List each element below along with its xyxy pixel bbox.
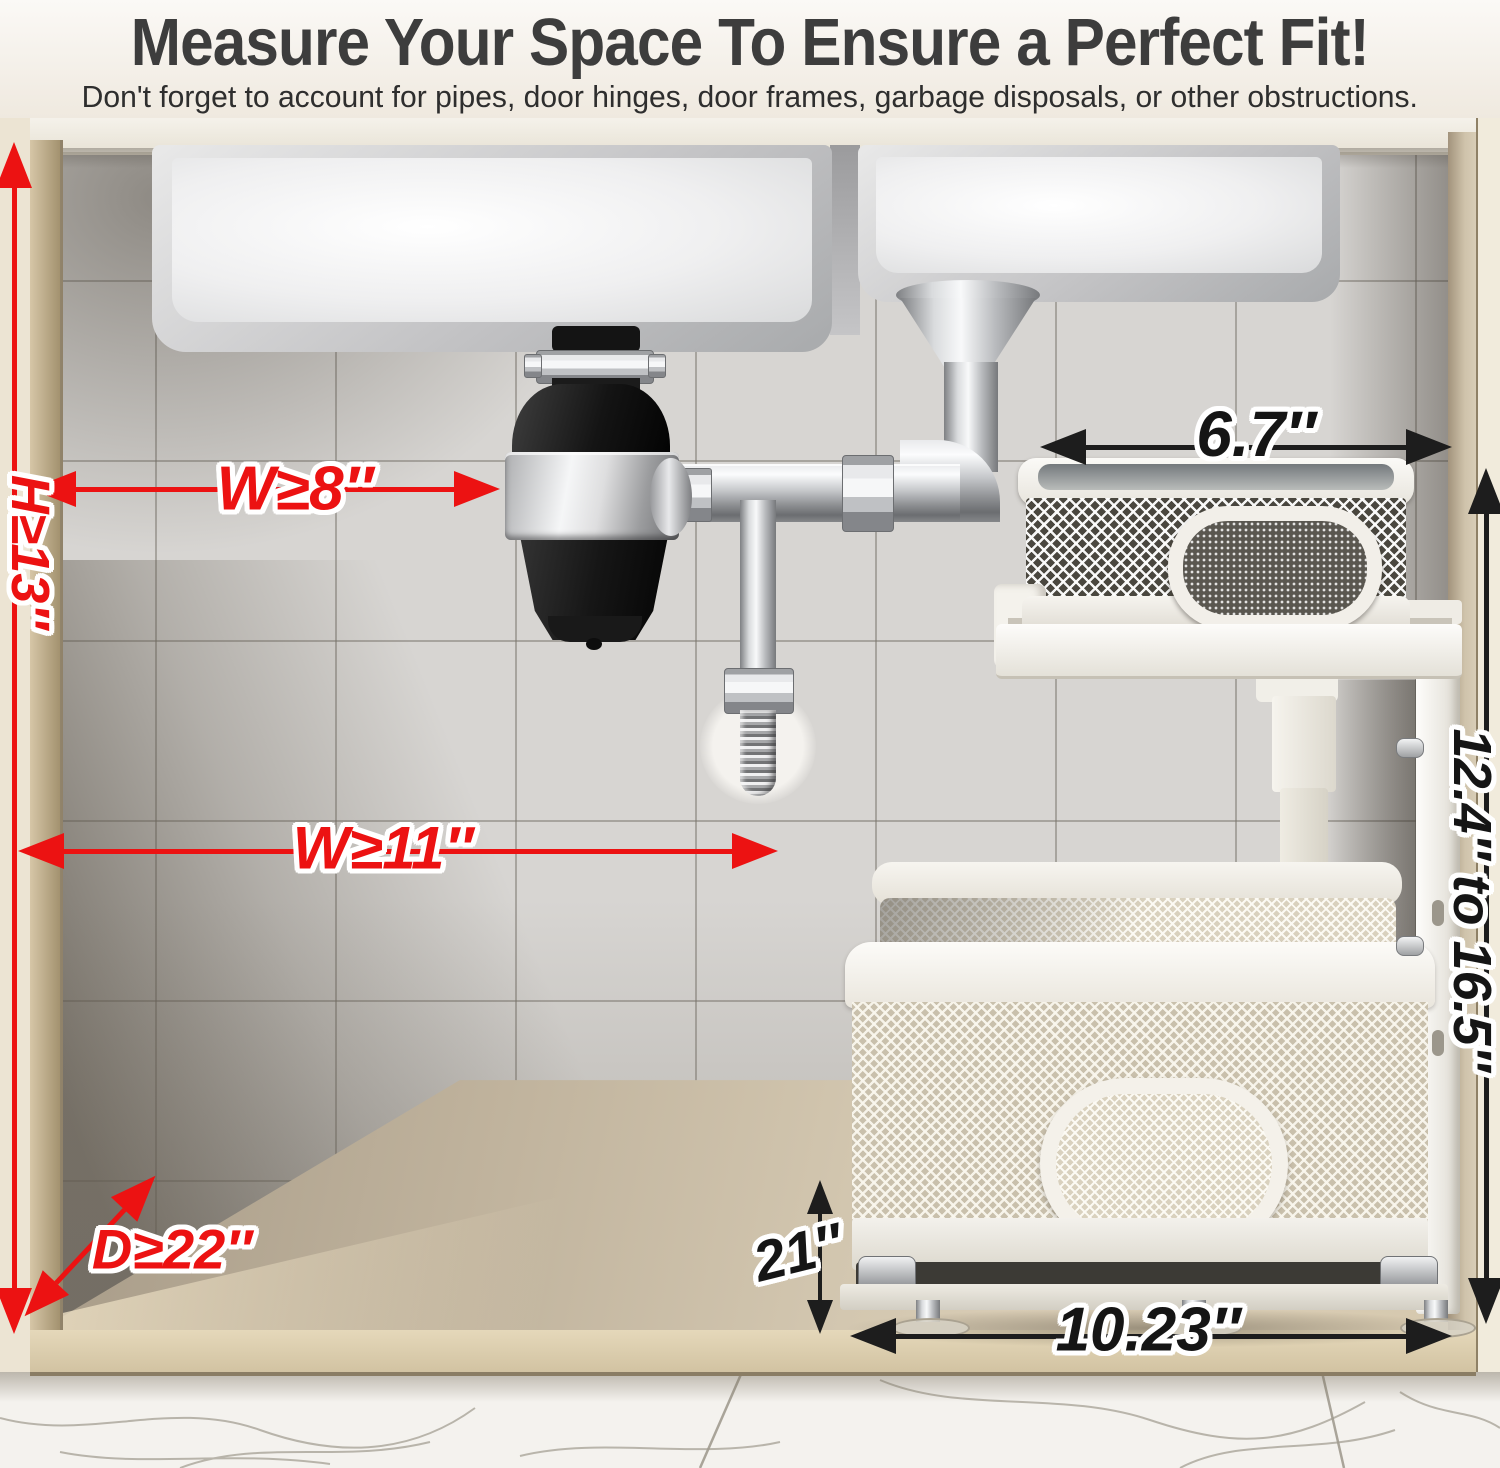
frame-back-post-upper (1272, 696, 1336, 792)
threaded-tailpiece (740, 710, 776, 796)
arrow-down-icon (807, 1300, 833, 1334)
page-title: Measure Your Space To Ensure a Perfect F… (0, 0, 1500, 80)
tailpiece-nut (724, 668, 794, 714)
pipe-coupling-nut (842, 455, 894, 532)
disposal-mount-ring (552, 326, 640, 352)
page-subtitle: Don't forget to account for pipes, door … (0, 80, 1500, 114)
arrow-right-icon (454, 471, 500, 507)
right-sink-basin-face (876, 157, 1322, 273)
arrow-line (12, 188, 17, 1288)
arrow-up-icon (807, 1180, 833, 1214)
label-adjustable-height: 12.4″ to 16.5″ (1441, 729, 1500, 1072)
arrow-left-icon (18, 833, 64, 869)
arrow-left-icon (850, 1318, 896, 1354)
adjust-screw-lower (1396, 936, 1424, 956)
page-subtitle-text: Don't forget to account for pipes, door … (82, 80, 1418, 114)
adjust-screw-upper (1396, 738, 1424, 758)
garbage-disposal-outlet (650, 458, 692, 536)
arrow-left-icon (1040, 429, 1086, 465)
label-cabinet-width: W≥11″ (293, 814, 474, 883)
bottom-basket-front-rim (845, 942, 1435, 1008)
left-sink-basin-face (172, 158, 812, 322)
arrow-cabinet-height (0, 142, 33, 1334)
label-top-basket-width: 6.7″ (1196, 397, 1316, 471)
arrow-up-icon (0, 142, 32, 188)
garbage-disposal-top (512, 384, 670, 462)
top-basket-handle-window (1168, 506, 1382, 630)
arrow-right-icon (1406, 429, 1452, 465)
garbage-disposal-nub (586, 638, 602, 650)
clamp-bolt-right (648, 354, 666, 378)
label-bottom-basket-width: 10.23″ (1056, 1295, 1241, 1366)
header: Measure Your Space To Ensure a Perfect F… (0, 0, 1500, 118)
page-title-text: Measure Your Space To Ensure a Perfect F… (131, 6, 1369, 80)
arrow-right-icon (732, 833, 778, 869)
infographic: Measure Your Space To Ensure a Perfect F… (0, 0, 1500, 1468)
slide-shelf-front (996, 624, 1462, 679)
arrow-up-icon (1468, 468, 1500, 514)
clamp-bolt-left (524, 354, 542, 378)
label-cabinet-depth: D≥22″ (92, 1217, 252, 1282)
label-disposal-clearance-width: W≥8″ (217, 454, 374, 525)
floor-contact-shadow (0, 1372, 1500, 1402)
cabinet-left-frame (30, 140, 63, 1336)
label-cabinet-height: H≥13″ (0, 475, 61, 630)
arrow-right-icon (1406, 1318, 1452, 1354)
tee-down-pipe (740, 500, 776, 678)
arrow-down-icon (1468, 1278, 1500, 1324)
sink-divider (830, 145, 860, 335)
